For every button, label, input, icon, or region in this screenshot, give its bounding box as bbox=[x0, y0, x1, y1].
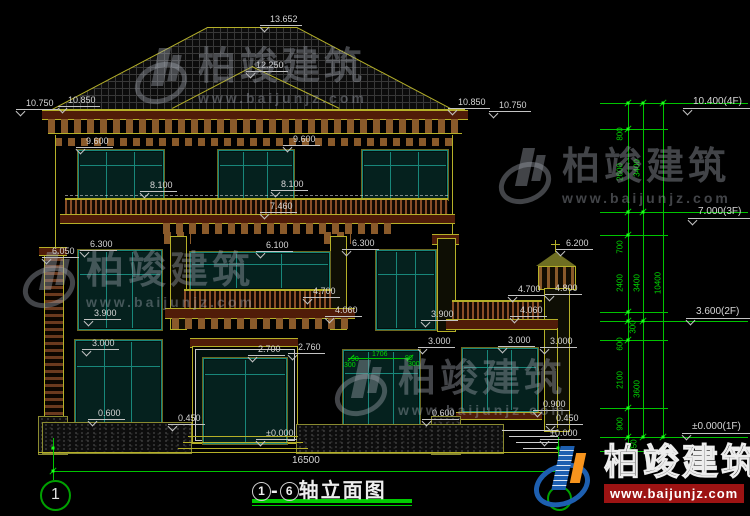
frieze-band bbox=[55, 138, 455, 146]
grip-point bbox=[627, 339, 630, 342]
dim-label: 10.850 bbox=[448, 97, 490, 109]
cad-elevation-canvas: 16500 1 1-6轴立面图 柏竣建筑 www.baijunjz.com 13… bbox=[0, 0, 750, 516]
drawing-title: 1-6轴立面图 bbox=[252, 474, 387, 503]
grip-point bbox=[627, 436, 630, 439]
ext-3900 bbox=[600, 312, 668, 313]
dim-label: 9.600 bbox=[283, 134, 320, 146]
title-axis-from: 1 bbox=[252, 482, 271, 501]
window-dim-label: 300 bbox=[344, 362, 356, 369]
dim-label: 2.760 bbox=[288, 342, 325, 354]
grip-point bbox=[642, 320, 645, 323]
chain-dim-label: 2100 bbox=[616, 371, 625, 389]
dim-label: 4.700 bbox=[303, 286, 340, 298]
entrance-step-3 bbox=[178, 448, 308, 449]
dim-label: 0.450 bbox=[168, 413, 205, 425]
dim-label: 8.100 bbox=[271, 179, 308, 191]
chain-dim-label: 300 bbox=[629, 320, 638, 333]
ground-line bbox=[38, 452, 562, 453]
chain-line-inner bbox=[628, 103, 629, 451]
dim-label: ±0.000 bbox=[256, 428, 297, 440]
chain-dim-label: 3400 bbox=[633, 274, 642, 292]
level-marker: 7.000(3F) bbox=[688, 207, 750, 219]
dim-label: 4.060 bbox=[510, 305, 547, 317]
level-marker: 3.600(2F) bbox=[686, 307, 750, 319]
grip-point bbox=[627, 128, 630, 131]
dim-label: 6.050 bbox=[42, 246, 79, 258]
grip-point bbox=[627, 234, 630, 237]
grip-point bbox=[627, 211, 630, 214]
watermark-url: www.baijunjz.com bbox=[562, 191, 731, 205]
chain-dim-label: 2400 bbox=[616, 274, 625, 292]
dim-label: 3.900 bbox=[421, 309, 458, 321]
dim-label: 6.200 bbox=[556, 238, 593, 250]
dim-label: 12.250 bbox=[246, 60, 288, 72]
cornice-dentils bbox=[48, 119, 462, 134]
dim-label: 7.460 bbox=[260, 201, 297, 213]
ext-3000 bbox=[600, 340, 668, 341]
chain-dim-label: 10400 bbox=[654, 272, 663, 294]
dim-label: 10.750 bbox=[489, 100, 531, 112]
chain-dim-label: 2600 bbox=[616, 163, 625, 181]
slab-2f-brackets bbox=[172, 318, 348, 329]
window-3f-right bbox=[362, 150, 448, 200]
grip-point bbox=[662, 102, 665, 105]
balcony-3f-dash-line bbox=[65, 195, 448, 197]
dim-label: 3.900 bbox=[84, 308, 121, 320]
roof-ridge-line bbox=[207, 27, 297, 28]
dim-label: 0.600 bbox=[422, 408, 459, 420]
title-axis-to: 6 bbox=[280, 482, 299, 501]
grip-point bbox=[627, 102, 630, 105]
ext-3600 bbox=[600, 321, 748, 322]
window-dim-label: 1706 bbox=[372, 351, 388, 358]
dim-label: 6.100 bbox=[256, 240, 293, 252]
dim-label: 13.652 bbox=[260, 14, 302, 26]
dim-label: 4.060 bbox=[325, 305, 362, 317]
overall-dim-line bbox=[53, 471, 558, 472]
level-marker: 10.400(4F) bbox=[683, 97, 750, 109]
chain-dim-label: 800 bbox=[616, 127, 625, 140]
ext-0000 bbox=[600, 437, 748, 438]
window-wing bbox=[462, 348, 538, 412]
dim-label: 2.700 bbox=[248, 344, 285, 356]
dim-label: 9.600 bbox=[76, 136, 113, 148]
ext-0900 bbox=[600, 408, 668, 409]
chain-dim-label: 700 bbox=[616, 240, 625, 253]
watermark-name: 柏竣建筑 bbox=[562, 148, 731, 186]
chain-dim-label: 3400 bbox=[633, 159, 642, 177]
window-wing-sill bbox=[456, 412, 542, 420]
dim-label: 3.000 bbox=[82, 338, 119, 350]
chain-line-outer bbox=[663, 103, 664, 437]
level-marker: ±0.000(1F) bbox=[682, 422, 750, 434]
dim-label: 0.450 bbox=[546, 413, 583, 425]
title-underline-thin bbox=[252, 505, 412, 506]
chain-dim-label: 900 bbox=[616, 417, 625, 430]
grip-point bbox=[662, 436, 665, 439]
chain-dim-label: 3600 bbox=[633, 380, 642, 398]
grip-point bbox=[642, 102, 645, 105]
slab-3f-dentils bbox=[163, 223, 391, 234]
grip-point bbox=[52, 470, 55, 473]
title-dash: - bbox=[271, 480, 280, 502]
dim-label: 10.750 bbox=[16, 98, 58, 110]
entrance-step-2 bbox=[183, 442, 303, 443]
ext-6300 bbox=[600, 235, 668, 236]
side-step-3 bbox=[516, 442, 558, 443]
watermark-icon bbox=[502, 148, 554, 200]
dim-label: 6.300 bbox=[80, 239, 117, 251]
dim-label: 4.800 bbox=[545, 283, 582, 295]
grip-point bbox=[52, 447, 55, 450]
dim-label: 3.000 bbox=[418, 336, 455, 348]
dim-label: 0.600 bbox=[88, 408, 125, 420]
window-dim-label: 300 bbox=[408, 361, 420, 368]
company-logo-icon bbox=[538, 444, 596, 506]
wing-cornice bbox=[446, 319, 558, 330]
window-3f-left bbox=[78, 150, 164, 200]
dim-label: 4.700 bbox=[508, 284, 545, 296]
ext-9600 bbox=[600, 129, 668, 130]
dim-label: 8.100 bbox=[140, 180, 177, 192]
title-text: 轴立面图 bbox=[299, 480, 387, 502]
grip-point bbox=[627, 407, 630, 410]
dim-label: 3.000 bbox=[540, 336, 577, 348]
chimney-column-left bbox=[44, 252, 64, 430]
company-name: 柏竣建筑 bbox=[604, 444, 750, 480]
company-logo: 柏竣建筑 www.baijunjz.com bbox=[538, 444, 750, 506]
turret-roof bbox=[536, 252, 576, 266]
axis-bubble-1: 1 bbox=[40, 480, 71, 511]
chain-dim-label: 600 bbox=[616, 337, 625, 350]
grip-point bbox=[642, 211, 645, 214]
axis-extension-left bbox=[53, 438, 54, 480]
window-3f-center bbox=[218, 150, 294, 200]
company-url: www.baijunjz.com bbox=[604, 484, 744, 503]
dim-label: 6.300 bbox=[342, 238, 379, 250]
dim-label: 10.850 bbox=[58, 95, 100, 107]
dim-label: ±0.000 bbox=[540, 428, 581, 440]
dim-label: 0.900 bbox=[533, 399, 570, 411]
overall-width-dim: 16500 bbox=[292, 455, 320, 466]
plinth-right bbox=[296, 424, 504, 454]
grip-point bbox=[642, 436, 645, 439]
dim-label: 3.000 bbox=[498, 335, 535, 347]
chain-line-middle bbox=[643, 103, 644, 437]
grip-point bbox=[627, 311, 630, 314]
